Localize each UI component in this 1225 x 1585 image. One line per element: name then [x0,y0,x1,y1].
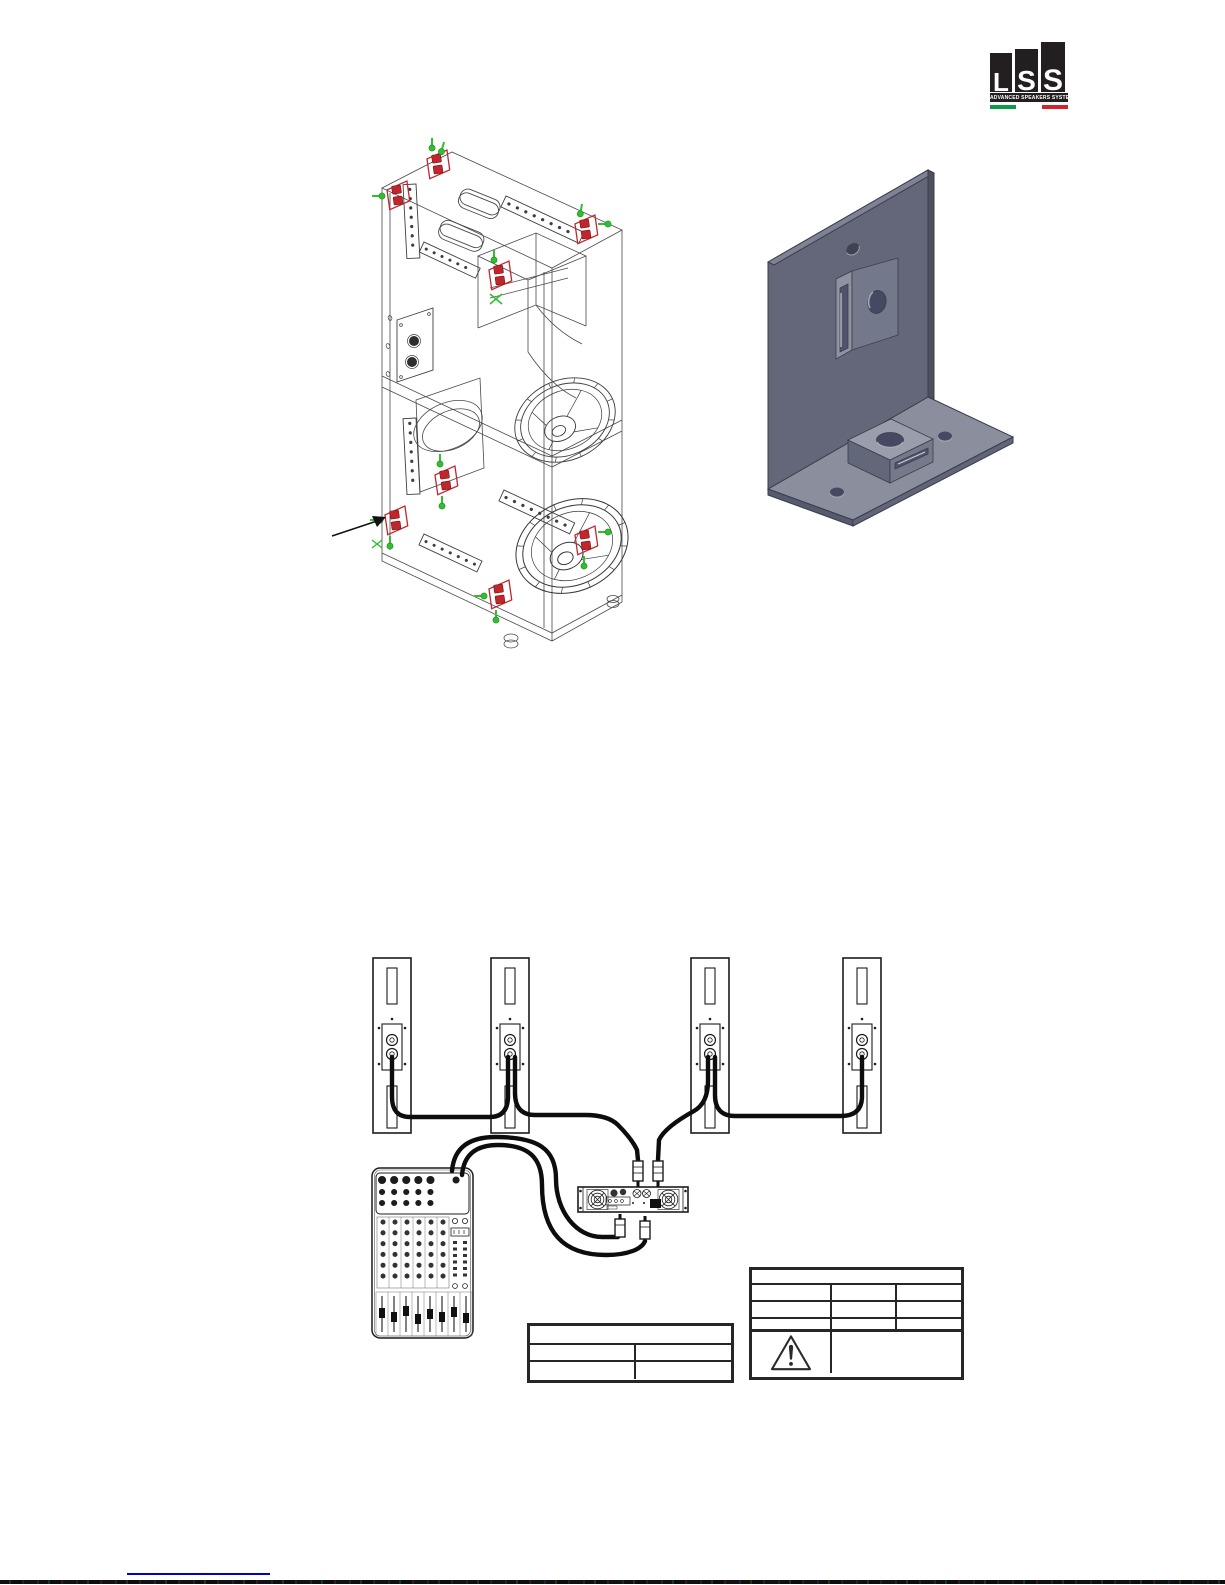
warning-note-cell [832,1332,961,1373]
footer-link[interactable] [127,1562,270,1575]
base-screw-hole-front [830,488,844,497]
warning-cell [752,1332,832,1373]
l-mounting-bracket-render [740,152,1020,552]
table-cell [752,1302,832,1317]
table-cell [530,1345,636,1360]
table-cell [832,1319,897,1329]
logo-letter-l: L [990,53,1012,92]
bass-port-slots [436,187,502,254]
table-cell [897,1319,961,1329]
table-cell [897,1302,961,1317]
table-cell [752,1285,832,1300]
table-header-cell [530,1326,731,1343]
table-cell [636,1362,731,1379]
flag-red [1042,105,1068,109]
mixer [372,1168,473,1338]
logo-tagline: ADVANCED SPEAKERS SYSTEMS [990,93,1068,102]
table-header-cell [752,1270,961,1283]
flag-white [1016,105,1042,109]
logo-letter-s2: S [1041,42,1065,92]
italian-flag-strip [990,105,1068,109]
logo-letter-blocks: L S S [990,42,1068,92]
manual-page: L S S ADVANCED SPEAKERS SYSTEMS [0,0,1225,1585]
logo-letter-s1: S [1015,49,1038,92]
spec-table-right [749,1267,964,1380]
table-cell [530,1362,636,1379]
table-cell [636,1345,731,1360]
spec-table-left [527,1323,734,1383]
base-screw-hole-right [938,432,952,441]
warning-triangle-icon [770,1334,812,1372]
speaker-panel-2 [491,958,529,1133]
flag-green [990,105,1016,109]
table-cell [897,1285,961,1300]
table-cell [832,1285,897,1300]
bracket-pointer-arrow [332,516,386,536]
table-cell [832,1302,897,1317]
table-cell [752,1319,832,1329]
amplifier [578,1187,688,1212]
mounting-bracket-markers [370,138,611,623]
page-bottom-edge [0,1580,1225,1584]
lss-logo: L S S ADVANCED SPEAKERS SYSTEMS [990,42,1068,109]
input-connector-plate [385,308,433,382]
exploded-cabinet-wireframe-figure [330,138,660,668]
